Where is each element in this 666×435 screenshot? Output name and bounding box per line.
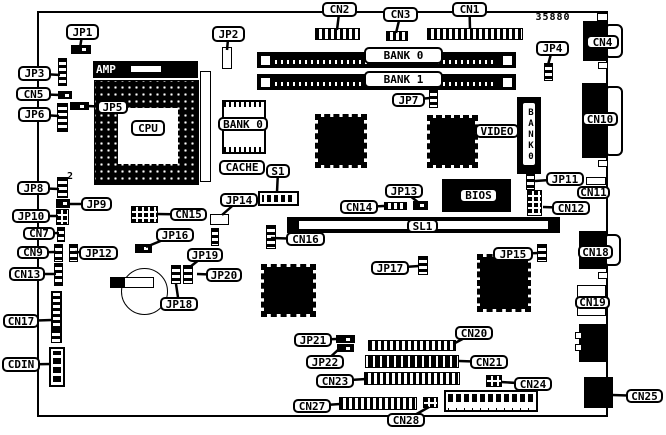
cn23-label: CN23 [316, 374, 354, 388]
jp10-connector [56, 209, 69, 225]
cn16-strip [266, 225, 276, 249]
edge-tab-3 [598, 160, 608, 167]
cn20-label: CN20 [455, 326, 493, 340]
jp11-label: JP11 [546, 172, 584, 186]
cn14-label: CN14 [340, 200, 378, 214]
cn5-connector [58, 91, 72, 99]
jp14-strip [211, 228, 219, 246]
cn3-connector [386, 31, 408, 41]
cn12-label: CN12 [552, 201, 590, 215]
jp10-label: JP10 [12, 209, 50, 223]
jp7-strip [429, 89, 438, 108]
jp13-label: JP13 [385, 184, 423, 198]
jp16-label: JP16 [156, 228, 194, 242]
jp8-label: JP8 [17, 181, 50, 195]
cn2-label: CN2 [322, 2, 357, 17]
jp18-strip [171, 265, 181, 284]
jp18-label: JP18 [160, 297, 198, 311]
video-label: VIDEO [475, 124, 519, 138]
pin2-label: 2 [66, 171, 75, 181]
edge-tab-2 [598, 62, 608, 69]
cn7-label: CN7 [23, 227, 55, 240]
cn24-label: CN24 [514, 377, 552, 391]
jp15-strip [537, 244, 547, 262]
jp13-jumper [413, 201, 428, 210]
cn21-label: CN21 [470, 355, 508, 369]
jp14-pad [210, 214, 229, 225]
jp19-strip [183, 265, 193, 284]
cn11-connector [586, 177, 606, 185]
cache-label: CACHE [219, 160, 265, 175]
bios-label: BIOS [459, 188, 498, 203]
cn13-strip [54, 263, 63, 286]
cn11-label: CN11 [577, 186, 610, 199]
cn2-connector [315, 28, 360, 40]
cn9-strip [54, 244, 63, 262]
cpu-socket-hole [118, 108, 178, 164]
bank0-cache-label: BANK 0 [218, 117, 268, 131]
battery-clip [124, 277, 154, 288]
jp16-jumper [135, 244, 152, 253]
cdin-label: CDIN [2, 357, 40, 372]
edge-tab-4 [598, 272, 608, 279]
cn15-connector [131, 206, 158, 223]
jp12-strip [69, 244, 78, 262]
cn28-connector [423, 397, 438, 408]
cn27-label: CN27 [293, 399, 331, 413]
s1-dip-switch [258, 191, 299, 206]
cn18-label: CN18 [578, 245, 613, 259]
audio-chip [477, 254, 531, 312]
cpu-label: CPU [131, 120, 165, 136]
jp20-label: JP20 [206, 268, 242, 282]
cn24-connector [486, 375, 502, 387]
io-chip [261, 264, 316, 317]
jp17-strip [418, 256, 428, 275]
cpu-side-slot [200, 71, 211, 182]
jp5-label: JP5 [97, 100, 128, 114]
cn9-label: CN9 [17, 246, 49, 259]
jp9-label: JP9 [81, 197, 112, 211]
battery-clip-black [110, 277, 124, 288]
jp1-label: JP1 [66, 24, 99, 40]
jp3-strip [58, 58, 67, 86]
cn20-header [368, 340, 456, 351]
video-chip [427, 115, 478, 168]
cn12-connector [527, 190, 542, 216]
s1-label: S1 [266, 164, 290, 178]
cn14-connector [384, 202, 407, 210]
cn1-connector [427, 28, 523, 40]
cn13-label: CN13 [9, 267, 45, 281]
jp22-label: JP22 [306, 355, 344, 369]
jp4-label: JP4 [536, 41, 569, 56]
cn15-label: CN15 [170, 208, 207, 221]
amp-label: AMP [96, 63, 126, 76]
jp3-label: JP3 [18, 66, 51, 81]
cn23-connector [364, 372, 460, 385]
jp2-connector [222, 47, 232, 69]
sl1-label: SL1 [407, 219, 438, 233]
cn27-connector [339, 397, 417, 410]
edge-tab-1 [597, 13, 608, 21]
cn21-connector [365, 355, 459, 368]
jp21-label: JP21 [294, 333, 332, 347]
part-number-label: 35880 [533, 12, 573, 23]
cdin-upper-strip [51, 329, 61, 343]
jp14-label: JP14 [220, 193, 258, 207]
bank0-vertical-label: BANK0 [521, 101, 537, 167]
cn28-label: CN28 [387, 413, 425, 427]
cn25-label: CN25 [626, 389, 663, 403]
front-panel-header [444, 390, 538, 412]
jp17-label: JP17 [371, 261, 409, 275]
jp7-label: JP7 [392, 93, 425, 107]
jp1-jumper [71, 45, 91, 54]
audio-jack-port [579, 324, 606, 362]
jp6-strip [57, 103, 68, 132]
cn17-label: CN17 [3, 314, 39, 328]
jp12-label: JP12 [79, 246, 118, 260]
cdin-connector [49, 347, 65, 387]
cn5-label: CN5 [16, 87, 51, 101]
jp11-strip [526, 172, 535, 190]
cn1-label: CN1 [452, 2, 487, 17]
jp21-jumper-a [336, 335, 355, 343]
bank1-simm-label: BANK 1 [364, 71, 443, 88]
chipset-chip-1 [315, 114, 367, 168]
jp4-jumper [544, 63, 553, 81]
audio-jack-tab-b [575, 344, 582, 351]
jp5-jumper [70, 102, 89, 110]
amp-slider [130, 65, 162, 73]
jp9-jumper [56, 199, 70, 208]
jp21-jumper-b [337, 344, 354, 352]
cn10-label: CN10 [582, 112, 618, 126]
jp2-label: JP2 [212, 26, 245, 42]
bank0-simm-label: BANK 0 [364, 47, 443, 64]
jp19-label: JP19 [187, 248, 223, 262]
cn19-label: CN19 [575, 296, 610, 309]
motherboard-diagram: 358802JP1JP2CN2CN3CN1JP4CN4JP3CN5JP6JP5A… [0, 0, 666, 435]
cn7-strip [57, 227, 65, 242]
audio-jack-tab-a [575, 332, 582, 339]
cn25-port [584, 377, 613, 408]
cn16-label: CN16 [286, 232, 325, 246]
jp6-label: JP6 [18, 107, 51, 122]
jp15-label: JP15 [493, 247, 533, 261]
cn3-label: CN3 [383, 7, 418, 22]
cn4-label: CN4 [586, 35, 619, 49]
